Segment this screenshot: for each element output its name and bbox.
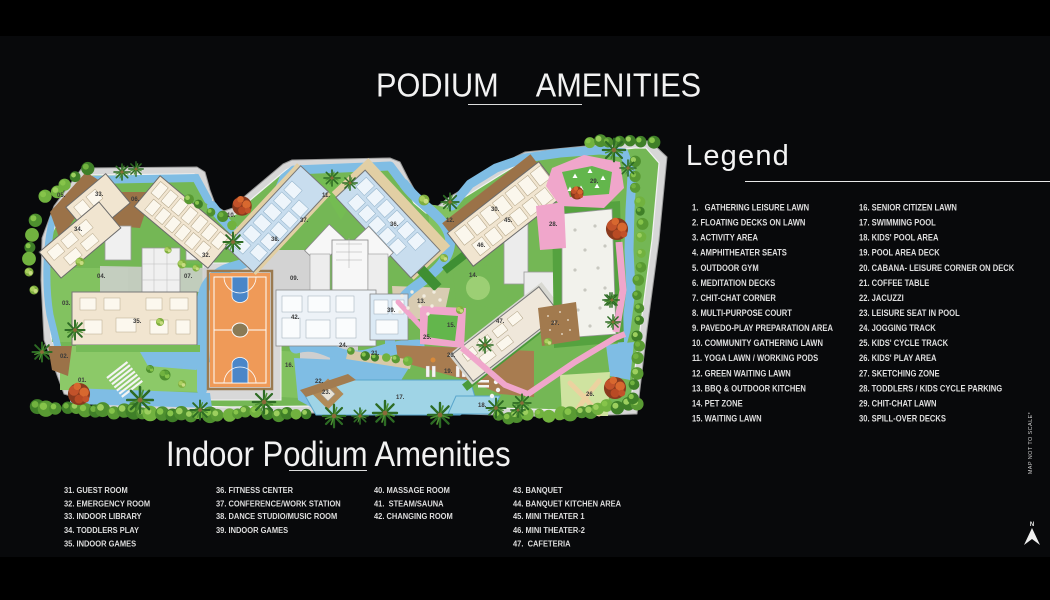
svg-text:26.: 26. [586,392,595,398]
svg-text:02.: 02. [60,354,69,360]
svg-text:04.: 04. [97,274,106,280]
svg-text:34.: 34. [74,227,83,233]
svg-text:15.: 15. [447,323,456,329]
svg-text:11.: 11. [322,193,330,199]
svg-text:18.: 18. [478,403,487,409]
svg-text:07.: 07. [184,274,193,280]
svg-text:45.: 45. [504,218,513,224]
svg-text:20.: 20. [447,353,456,359]
svg-text:32.: 32. [202,253,211,259]
svg-text:23.: 23. [322,390,331,396]
svg-text:29.: 29. [590,179,599,185]
svg-text:37.: 37. [300,218,309,224]
svg-text:05.: 05. [57,193,66,199]
svg-text:13.: 13. [417,299,426,305]
svg-text:28.: 28. [549,222,558,228]
svg-text:25.: 25. [423,335,432,341]
svg-text:22.: 22. [315,379,324,385]
svg-text:19.: 19. [444,369,453,375]
svg-text:21.: 21. [371,351,380,357]
svg-text:27.: 27. [551,321,560,327]
svg-text:N: N [1030,522,1034,528]
svg-text:14.: 14. [469,273,478,279]
svg-text:46.: 46. [477,243,486,249]
svg-text:35.: 35. [133,319,142,325]
svg-text:10.: 10. [227,213,236,219]
svg-text:47.: 47. [496,319,505,325]
svg-text:38.: 38. [271,237,280,243]
svg-text:30.: 30. [491,207,500,213]
svg-text:33.: 33. [95,192,104,198]
svg-text:06.: 06. [131,197,140,203]
svg-text:39.: 39. [387,308,396,314]
svg-text:24.: 24. [339,343,348,349]
svg-text:16.: 16. [285,363,294,369]
svg-text:09.: 09. [290,276,299,282]
svg-text:17.: 17. [396,395,405,401]
svg-text:36.: 36. [390,222,399,228]
svg-text:01.: 01. [78,378,87,384]
svg-text:12.: 12. [446,218,455,224]
svg-text:03.: 03. [62,301,71,307]
svg-text:42.: 42. [291,315,300,321]
